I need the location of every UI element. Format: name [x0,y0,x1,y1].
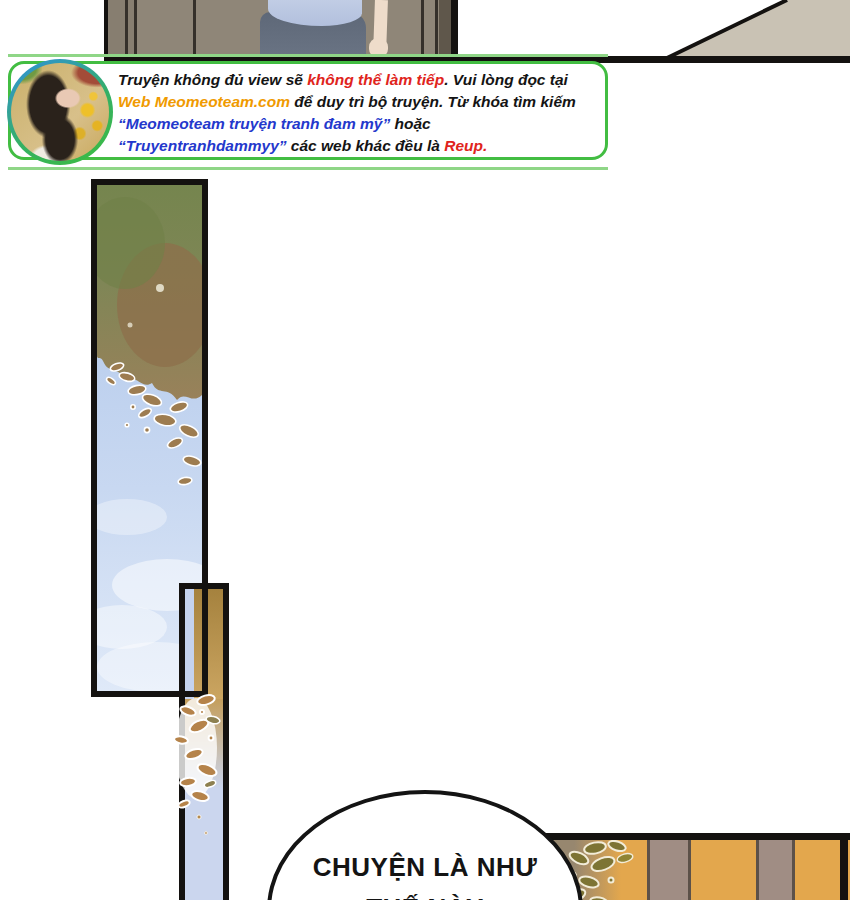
speech-bubble: CHUYỆN LÀ NHƯ THẾ NÀY [267,790,583,900]
door-frame-line [421,0,424,57]
notice-text-segment: để duy trì bộ truyện. Từ khóa tìm kiếm [290,93,576,110]
keyword-truyentranh-text: “Truyentranhdammyy” [118,137,287,154]
notice-text-segment: Truyện không đủ view sẽ [118,71,307,88]
banner-accent-line-bottom [8,167,608,170]
keyword-dammy-text: “Meomeoteam truyện tranh đam mỹ” [118,115,390,132]
door-frame-strip [108,0,136,57]
autumn-leaves-overlay [166,678,238,818]
speech-bubble-line-1: CHUYỆN LÀ NHƯ [271,852,579,883]
avatar-photo [11,63,109,161]
banner-line-3: “Meomeoteam truyện tranh đam mỹ” hoặc [118,113,604,135]
warning-red-text: không thể làm tiếp [307,71,444,88]
door-frame-line [193,0,196,57]
door-frame-column [439,0,451,57]
notice-text: Truyện không đủ view sẽ không thể làm ti… [118,69,604,157]
door-frame-line [125,0,128,57]
banner-accent-line-top [8,54,608,57]
comic-page: Truyện không đủ view sẽ không thể làm ti… [0,0,850,900]
notice-text-segment: các web khác đều là [287,137,445,154]
avatar [7,59,113,165]
building-panel [543,833,850,900]
site-url-text: Web Meomeoteam.com [118,93,290,110]
building-pillar [756,840,795,900]
notice-text-segment: hoặc [390,115,430,132]
character-arm [373,0,388,54]
door-frame-line [134,0,137,57]
door-frame-line [435,0,438,57]
banner-line-4: “Truyentranhdammyy” các web khác đều là … [118,135,604,157]
speech-bubble-line-2: THẾ NÀY [271,893,579,900]
banner-line-1: Truyện không đủ view sẽ không thể làm ti… [118,69,604,91]
reup-red-text: Reup. [444,137,487,154]
building-panel-frame-right [840,840,848,900]
beige-wall-shape [667,0,850,58]
notice-text-segment: . Vui lòng đọc tại [444,71,568,88]
banner-line-2: Web Meomeoteam.com để duy trì bộ truyện.… [118,91,604,113]
translator-notice-banner: Truyện không đủ view sẽ không thể làm ti… [8,61,608,160]
